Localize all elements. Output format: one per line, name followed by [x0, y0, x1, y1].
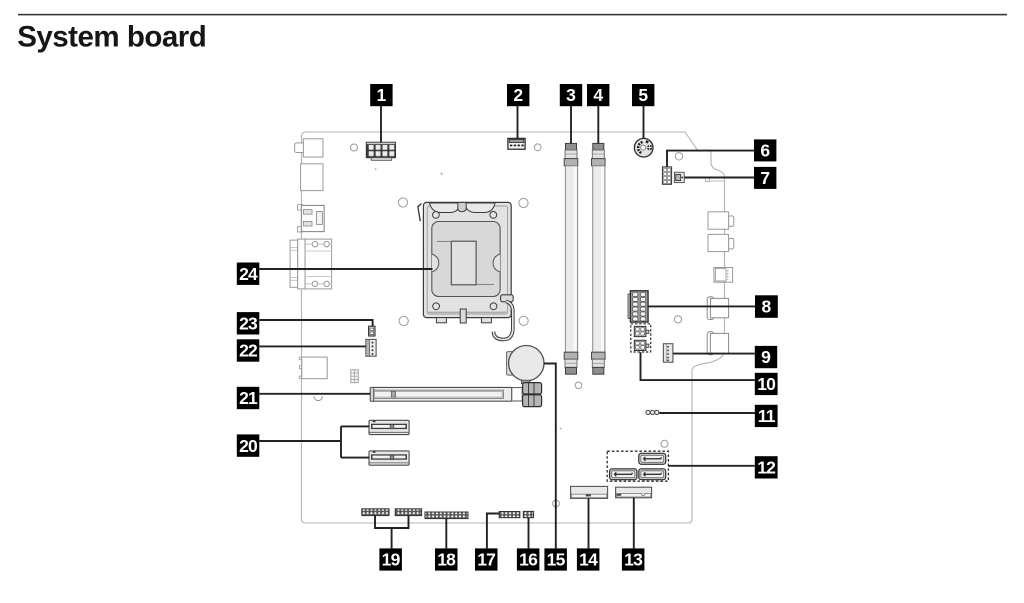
svg-text:8: 8 — [762, 297, 772, 317]
svg-text:15: 15 — [547, 550, 566, 570]
svg-text:23: 23 — [239, 314, 258, 334]
svg-text:13: 13 — [624, 550, 643, 570]
svg-text:5: 5 — [638, 85, 648, 105]
svg-text:11: 11 — [758, 406, 776, 426]
svg-text:17: 17 — [477, 550, 495, 570]
svg-text:12: 12 — [757, 458, 776, 478]
svg-text:6: 6 — [760, 141, 770, 161]
svg-text:24: 24 — [239, 264, 258, 284]
svg-text:7: 7 — [760, 168, 770, 188]
svg-text:22: 22 — [239, 341, 258, 361]
svg-text:18: 18 — [437, 550, 456, 570]
svg-text:1: 1 — [377, 85, 387, 105]
svg-text:20: 20 — [239, 436, 258, 456]
svg-text:9: 9 — [761, 347, 771, 367]
svg-text:2: 2 — [513, 85, 523, 105]
svg-text:14: 14 — [579, 550, 598, 570]
svg-text:System board: System board — [17, 20, 206, 53]
svg-text:10: 10 — [757, 374, 776, 394]
svg-text:16: 16 — [519, 550, 538, 570]
svg-text:19: 19 — [382, 550, 401, 570]
svg-text:21: 21 — [239, 388, 258, 408]
svg-text:4: 4 — [593, 85, 603, 105]
svg-text:3: 3 — [566, 85, 576, 105]
